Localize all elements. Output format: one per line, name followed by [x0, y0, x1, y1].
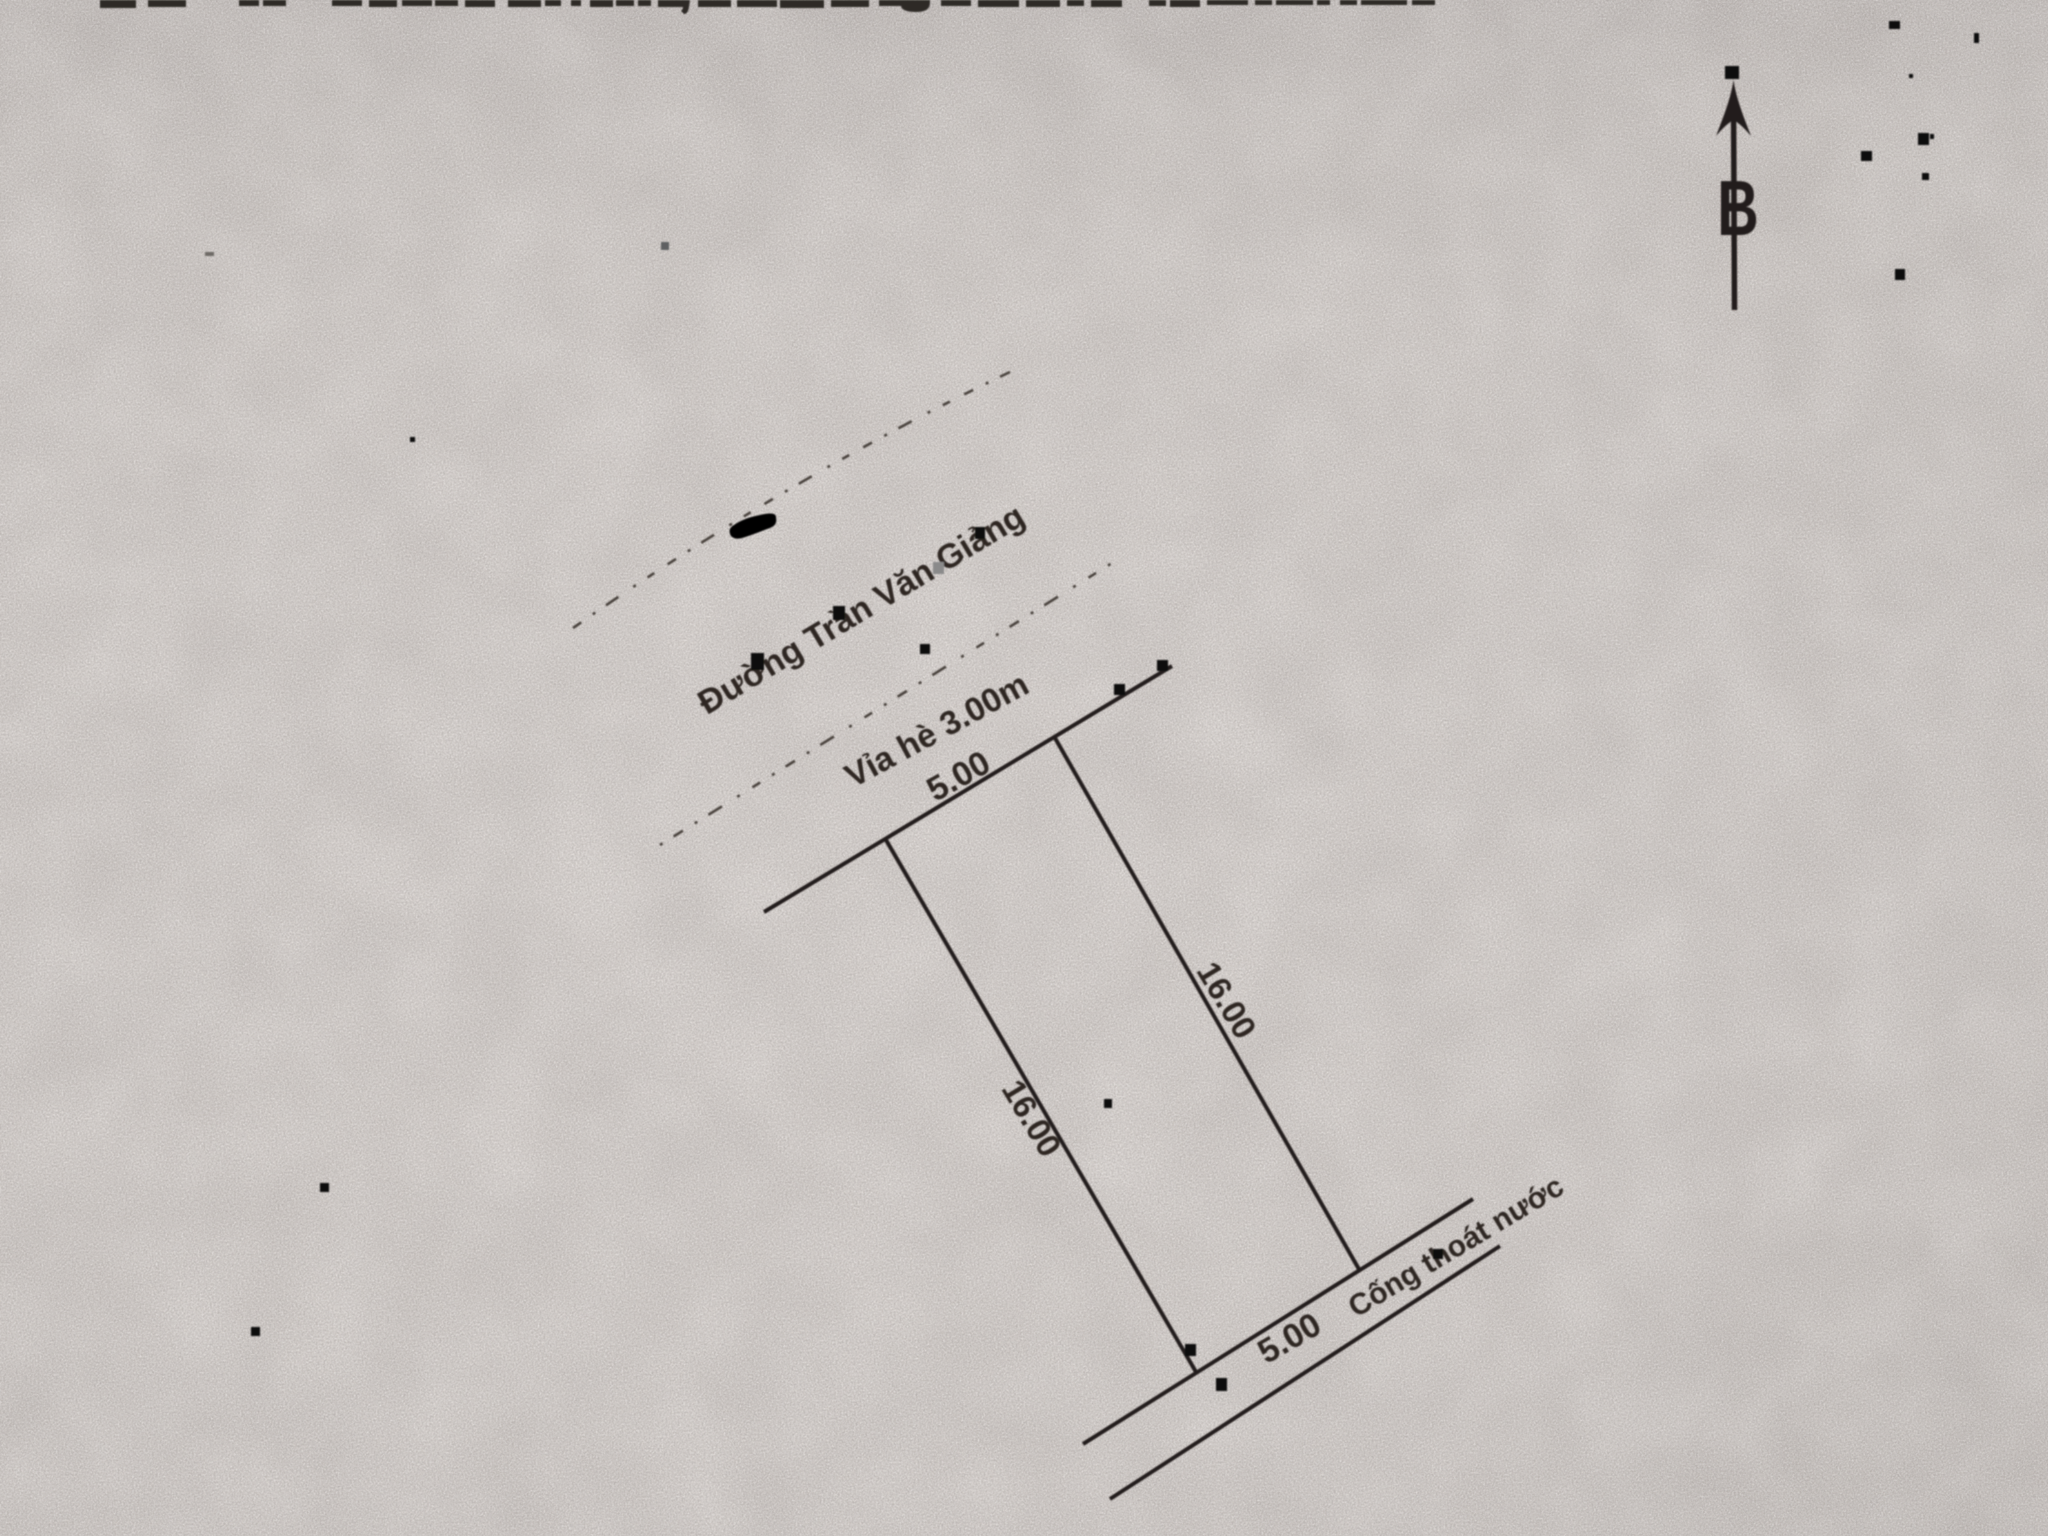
- svg-text:B: B: [1717, 165, 1759, 253]
